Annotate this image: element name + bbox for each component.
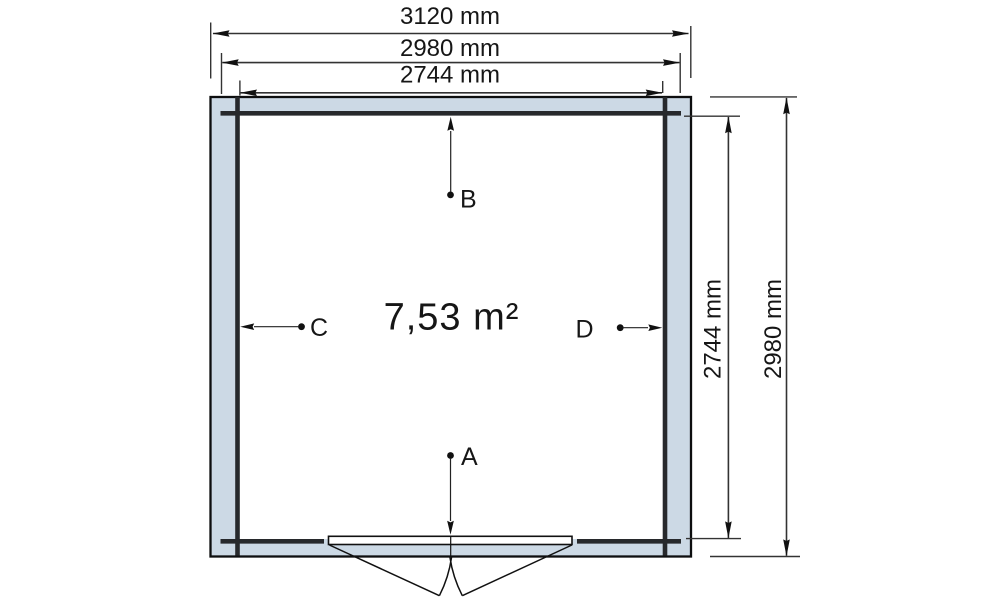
- svg-text:D: D: [576, 316, 594, 344]
- svg-text:3120 mm: 3120 mm: [400, 3, 500, 30]
- svg-text:7,53 m²: 7,53 m²: [384, 297, 520, 339]
- svg-text:C: C: [310, 314, 328, 342]
- svg-text:2980 mm: 2980 mm: [760, 279, 787, 379]
- svg-text:2744 mm: 2744 mm: [700, 279, 727, 379]
- svg-text:2744 mm: 2744 mm: [400, 62, 500, 89]
- svg-text:2980 mm: 2980 mm: [400, 35, 500, 62]
- svg-text:B: B: [460, 186, 477, 214]
- svg-text:A: A: [461, 443, 478, 471]
